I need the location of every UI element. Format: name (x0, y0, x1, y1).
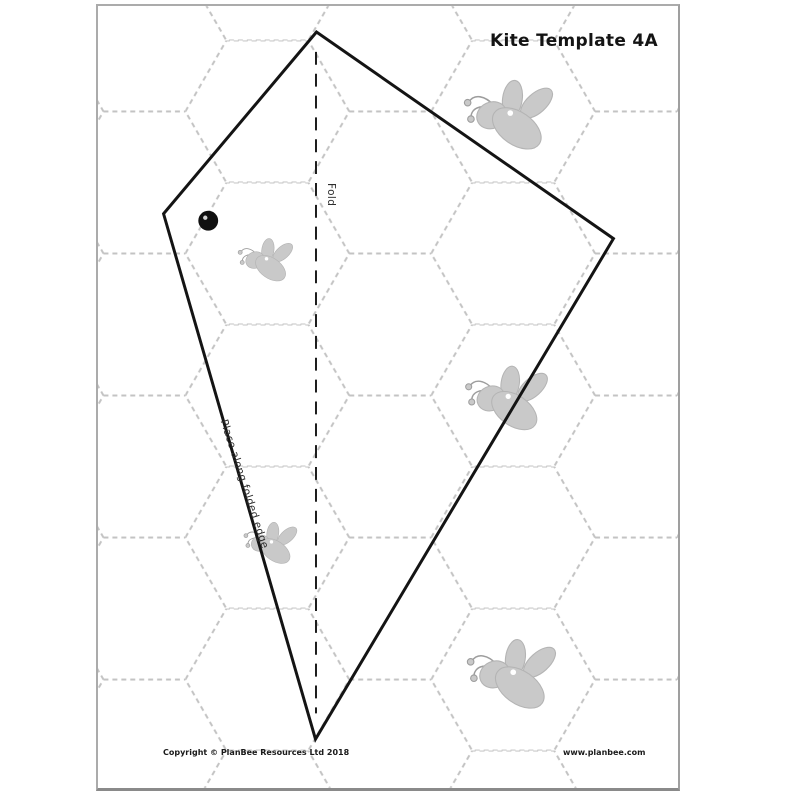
kite-template-page: Kite Template 4A Fold Place along folded… (96, 4, 680, 791)
punch-dot (198, 211, 218, 231)
website-text: www.planbee.com (563, 748, 645, 757)
kite-diagram (98, 6, 678, 788)
punch-dot-glint-icon (203, 216, 207, 220)
copyright-text: Copyright © PlanBee Resources Ltd 2018 (163, 748, 349, 757)
screenshot-canvas: Kite Template 4A Fold Place along folded… (0, 0, 800, 800)
page-title: Kite Template 4A (490, 31, 658, 51)
hexagon-paper-background (98, 6, 678, 788)
fold-label: Fold (325, 183, 337, 206)
